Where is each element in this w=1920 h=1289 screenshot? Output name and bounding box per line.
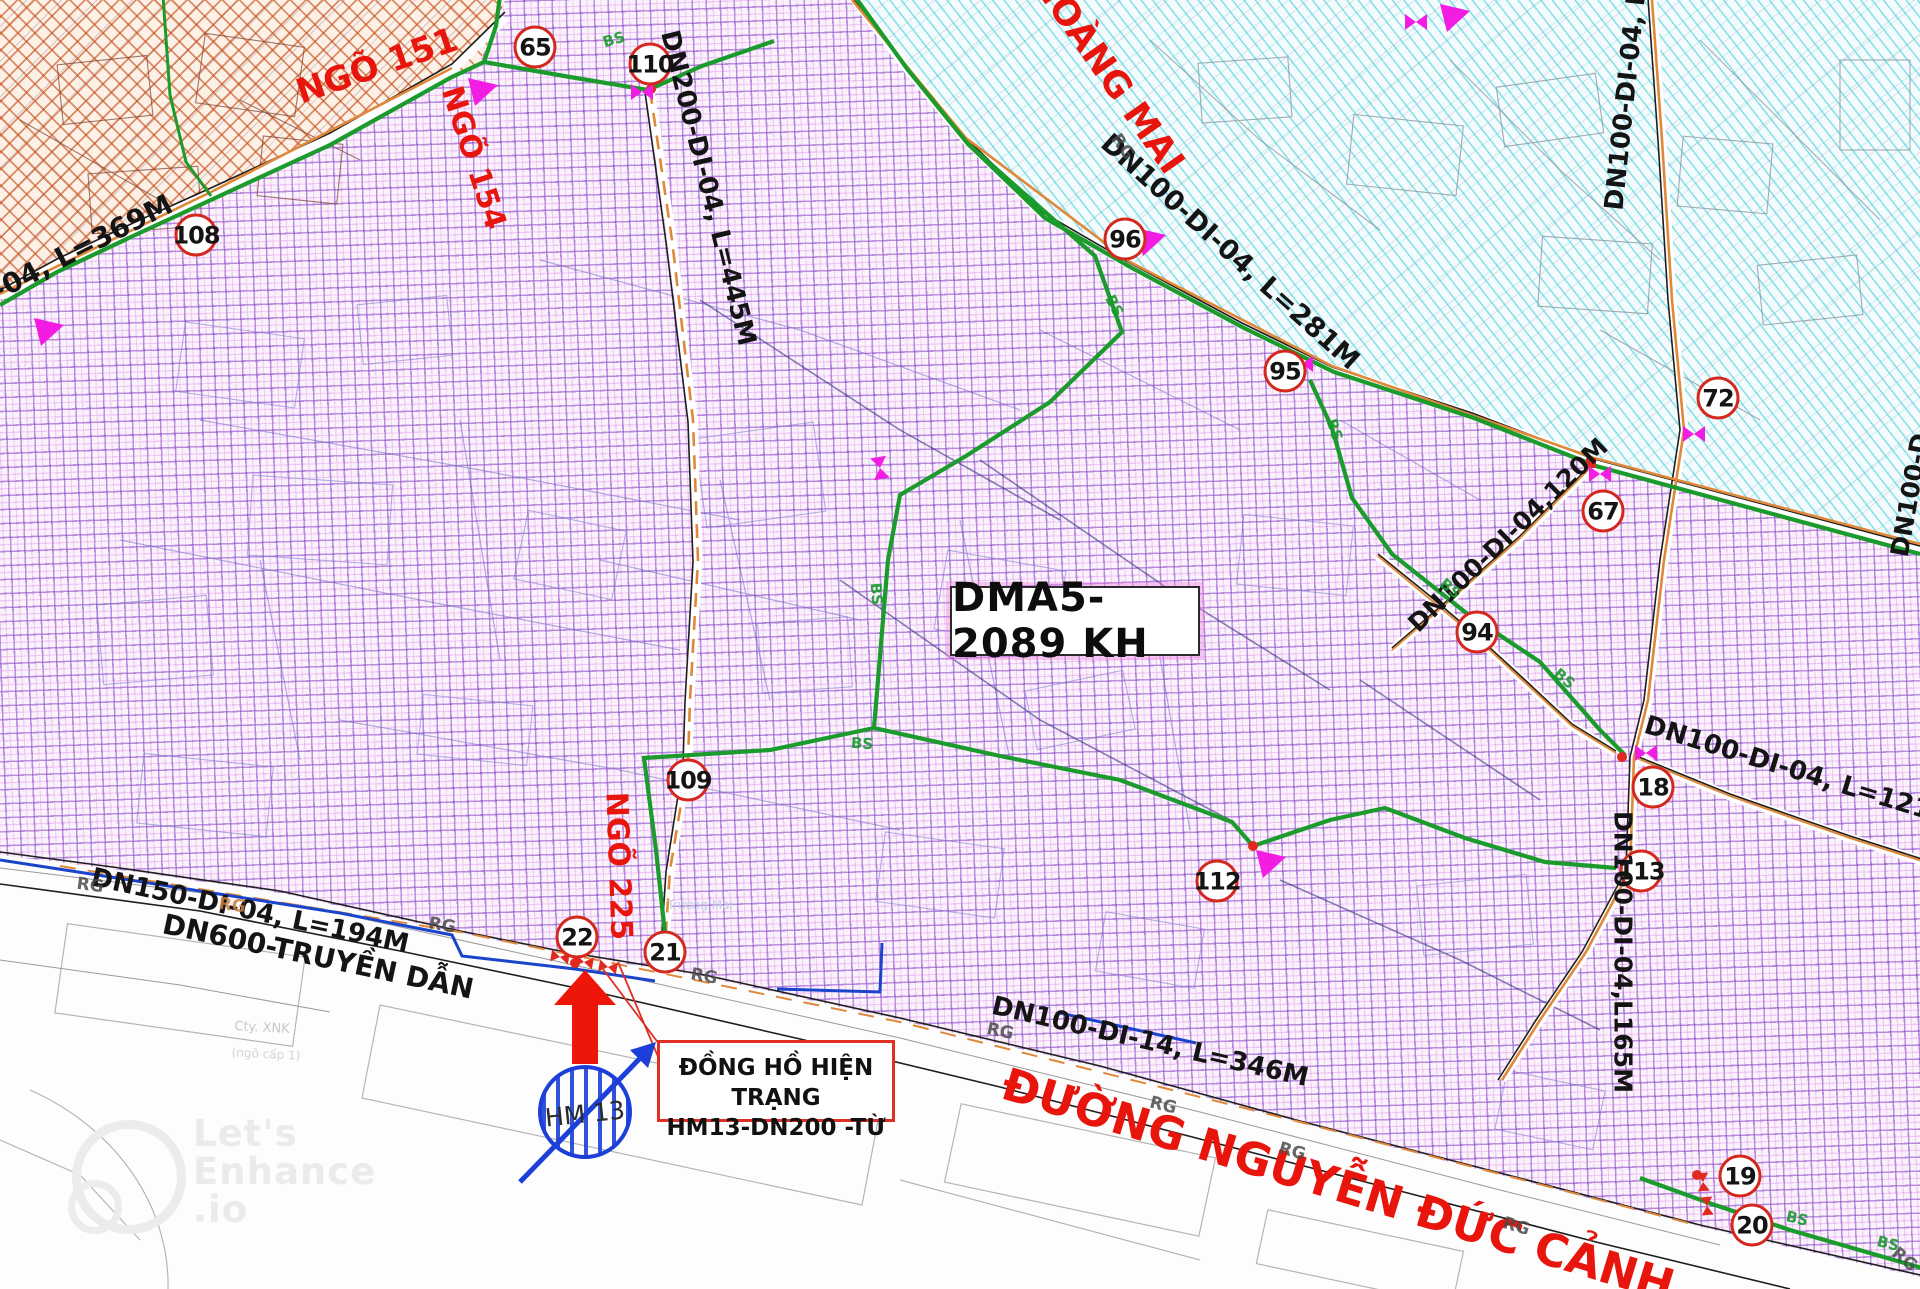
street-label-ngo-225: NGÕ 225 [600, 791, 635, 940]
meter-callout-line1: ĐỒNG HỒ HIỆN TRẠNG [660, 1053, 892, 1113]
node-67: 67 [1582, 490, 1625, 533]
node-72: 72 [1697, 377, 1740, 420]
node-19: 19 [1719, 1155, 1762, 1198]
dma-map-canvas: HM 13 DMA5-2089 KH ĐỒNG HỒ HIỆN TRẠNG HM… [0, 0, 1920, 1289]
node-109: 109 [667, 759, 710, 802]
node-95: 95 [1264, 350, 1307, 393]
faint-label-ngo-cap: (ngõ cấp 1) [231, 1046, 300, 1062]
node-18: 18 [1632, 766, 1675, 809]
node-20: 20 [1731, 1204, 1774, 1247]
node-22: 22 [556, 916, 599, 959]
pipe-label-dn100-165m: DN100-DI-04,L165M [1611, 811, 1636, 1093]
bs-marker: BS [850, 736, 873, 753]
rg-marker: RG [75, 876, 104, 897]
rg-marker: RG [427, 915, 457, 936]
faint-label-cty: Cty. XNK [234, 1020, 290, 1036]
node-21: 21 [644, 931, 687, 974]
building-outlines-dma [97, 295, 1605, 1149]
meter-callout-line2: HM13-DN200 -TỪ [660, 1113, 892, 1143]
node-96: 96 [1104, 218, 1147, 261]
faint-label-truong: Trường Mai [667, 899, 733, 911]
node-108: 108 [175, 214, 218, 257]
node-112: 112 [1196, 860, 1239, 903]
bs-marker: BS [1784, 1209, 1809, 1229]
node-110: 110 [629, 43, 672, 86]
rg-marker: RG [217, 896, 246, 917]
node-65: 65 [514, 26, 557, 69]
rg-marker: RG [689, 966, 719, 987]
dma-zone-label: DMA5-2089 KH [950, 586, 1200, 656]
bs-marker: BS [1875, 1234, 1900, 1254]
bs-marker: BS [868, 582, 885, 605]
meter-callout-box: ĐỒNG HỒ HIỆN TRẠNG HM13-DN200 -TỪ [657, 1040, 895, 1122]
node-94: 94 [1456, 611, 1499, 654]
